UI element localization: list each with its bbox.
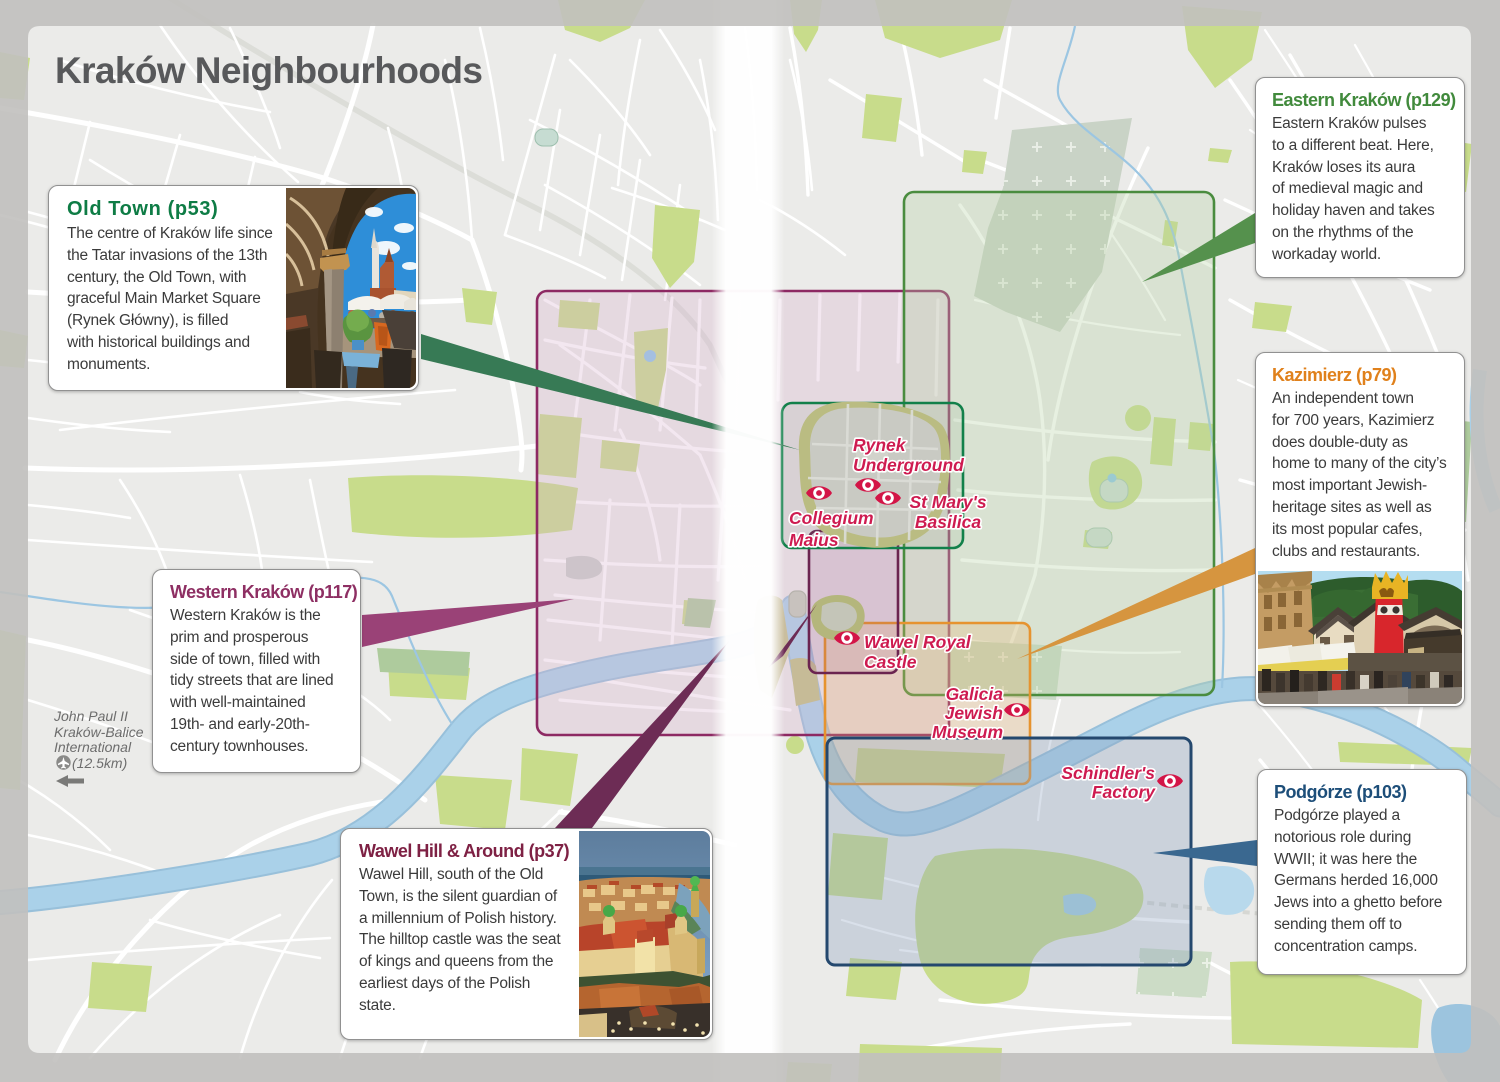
svg-text:Galicia: Galicia [946,684,1004,704]
svg-text:Kraków-Balice: Kraków-Balice [54,724,144,740]
svg-text:Factory: Factory [1092,782,1156,802]
svg-text:St Mary's: St Mary's [909,492,986,512]
svg-text:Jewish: Jewish [945,703,1003,723]
svg-text:(12.5km): (12.5km) [72,755,127,771]
svg-text:Museum: Museum [932,722,1003,742]
svg-text:John Paul II: John Paul II [53,708,128,724]
svg-text:Maius: Maius [789,530,839,550]
svg-text:Wawel Royal: Wawel Royal [864,632,972,652]
svg-text:Schindler's: Schindler's [1061,763,1155,783]
svg-text:Basilica: Basilica [915,512,981,532]
svg-text:Castle: Castle [864,652,917,672]
svg-text:International: International [54,739,132,755]
svg-text:Underground: Underground [853,455,964,475]
svg-text:Collegium: Collegium [789,508,874,528]
svg-text:Rynek: Rynek [853,435,907,455]
